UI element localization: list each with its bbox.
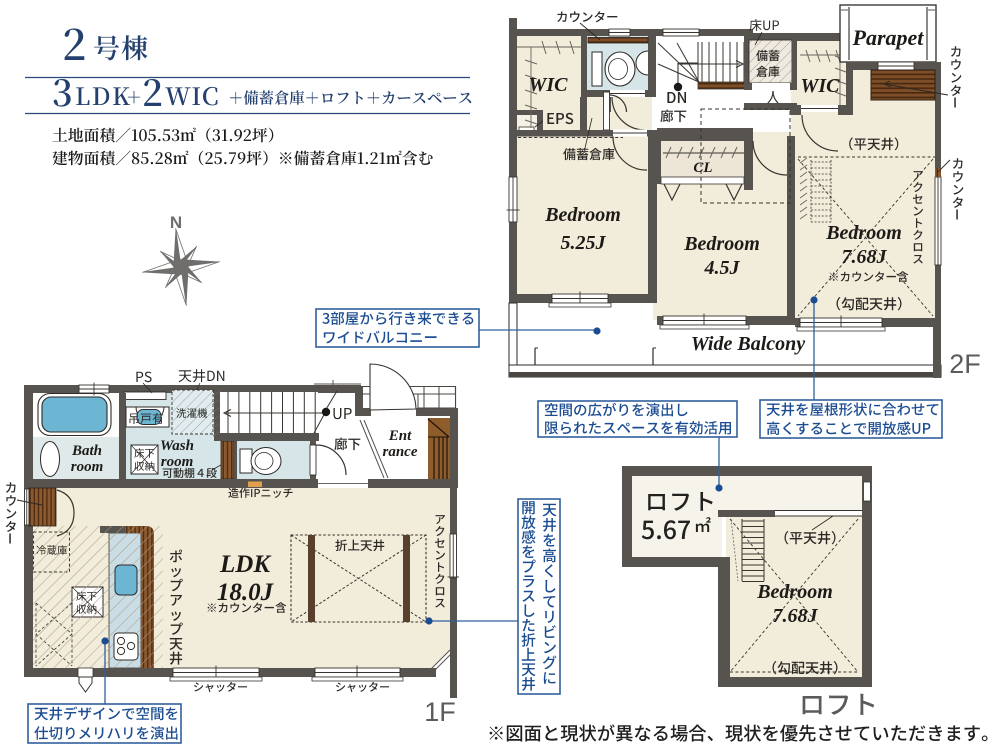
svg-text:Bedroom: Bedroom: [825, 222, 902, 244]
svg-text:CL: CL: [693, 160, 712, 176]
svg-text:2F: 2F: [949, 349, 981, 379]
svg-text:Wash: Wash: [160, 438, 194, 454]
svg-text:rance: rance: [383, 444, 418, 460]
svg-text:N: N: [170, 213, 182, 232]
svg-text:Wide Balcony: Wide Balcony: [691, 333, 805, 355]
svg-text:18.0J: 18.0J: [217, 579, 275, 606]
svg-text:7.68J: 7.68J: [842, 246, 888, 268]
svg-text:7.68J: 7.68J: [773, 605, 819, 627]
svg-text:WIC: WIC: [529, 74, 569, 96]
svg-text:WIC: WIC: [801, 75, 841, 97]
svg-text:5.25J: 5.25J: [561, 232, 607, 254]
svg-text:4.5J: 4.5J: [704, 257, 741, 279]
svg-text:Parapet: Parapet: [852, 25, 925, 50]
svg-text:Bedroom: Bedroom: [756, 581, 833, 603]
svg-text:Bedroom: Bedroom: [544, 204, 621, 226]
svg-text:Bedroom: Bedroom: [683, 233, 760, 255]
svg-text:room: room: [71, 459, 104, 475]
svg-text:Bath: Bath: [71, 443, 102, 459]
svg-text:LDK: LDK: [219, 551, 272, 578]
svg-text:1F: 1F: [424, 697, 456, 727]
svg-text:room: room: [161, 454, 194, 470]
svg-text:Ent: Ent: [388, 428, 412, 444]
